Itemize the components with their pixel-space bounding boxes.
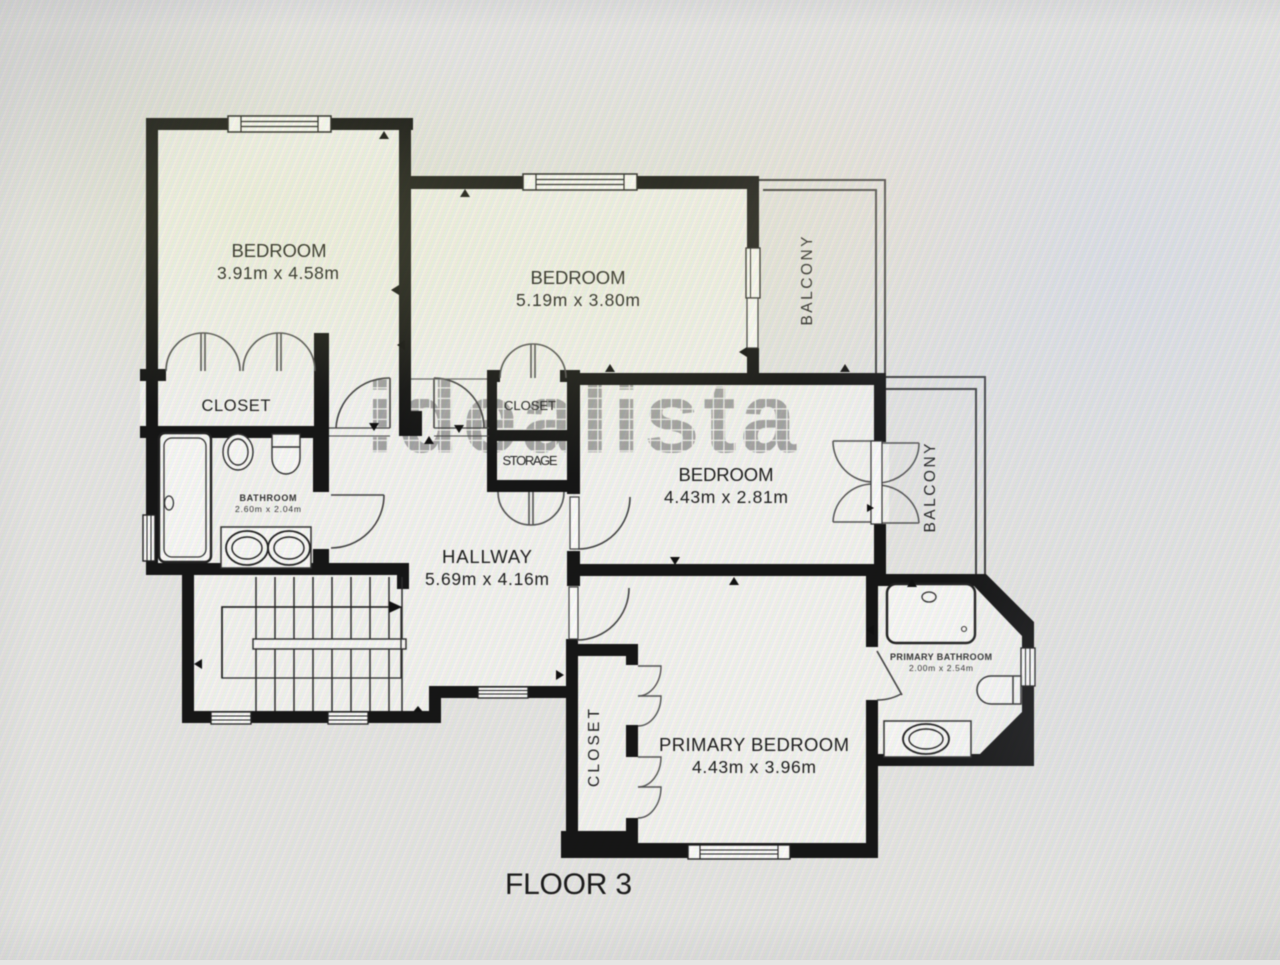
svg-text:BATHROOM: BATHROOM <box>240 493 297 503</box>
svg-text:BEDROOM: BEDROOM <box>232 240 327 261</box>
svg-text:BEDROOM: BEDROOM <box>679 464 774 485</box>
svg-text:2.00m x 2.54m: 2.00m x 2.54m <box>909 663 973 673</box>
svg-text:3.91m x 4.58m: 3.91m x 4.58m <box>217 263 339 283</box>
svg-text:BALCONY: BALCONY <box>799 237 816 326</box>
svg-text:5.19m x 3.80m: 5.19m x 3.80m <box>516 290 640 310</box>
svg-text:FLOOR 3: FLOOR 3 <box>505 868 632 901</box>
svg-text:BEDROOM: BEDROOM <box>531 267 626 288</box>
svg-text:BALCONY: BALCONY <box>922 444 939 533</box>
svg-text:PRIMARY BEDROOM: PRIMARY BEDROOM <box>659 734 849 755</box>
svg-text:HALLWAY: HALLWAY <box>442 546 532 567</box>
svg-text:CLOSET: CLOSET <box>202 397 271 415</box>
svg-text:4.43m x 2.81m: 4.43m x 2.81m <box>664 487 788 507</box>
svg-text:STORAGE: STORAGE <box>503 453 558 468</box>
svg-text:4.43m x 3.96m: 4.43m x 3.96m <box>692 757 816 777</box>
svg-text:CLOSET: CLOSET <box>504 398 556 413</box>
svg-text:PRIMARY BATHROOM: PRIMARY BATHROOM <box>890 652 992 662</box>
svg-text:5.69m x 4.16m: 5.69m x 4.16m <box>425 569 549 589</box>
svg-text:2.60m x 2.04m: 2.60m x 2.04m <box>235 504 301 514</box>
